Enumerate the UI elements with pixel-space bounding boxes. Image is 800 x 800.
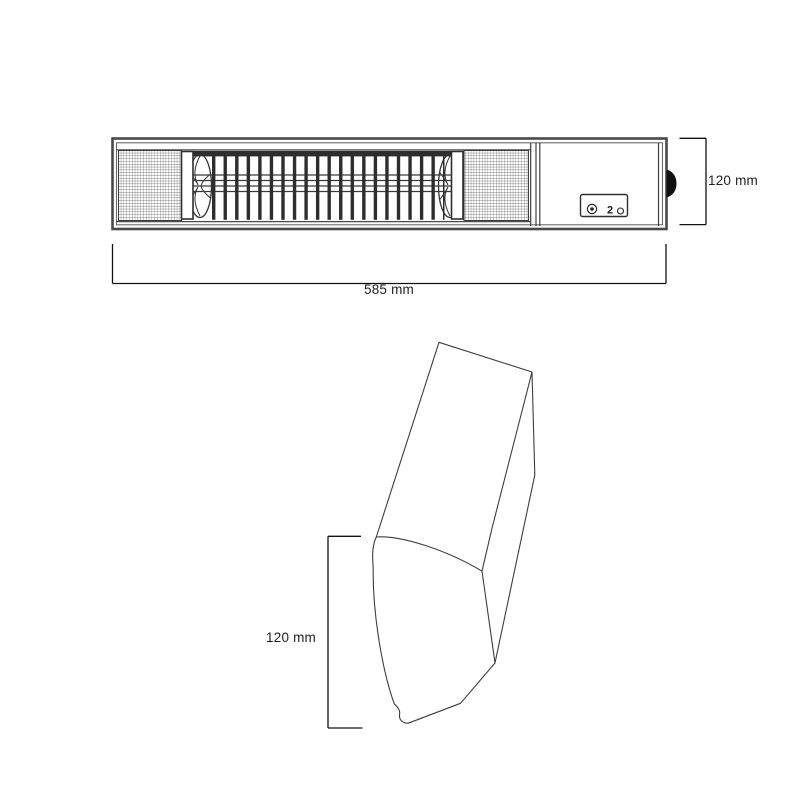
lamp-bracket-right (452, 152, 464, 220)
front-view: 2 (113, 138, 707, 283)
side-height-dimension-label: 120 mm (240, 631, 316, 645)
side-knob-icon (667, 170, 677, 198)
heater-dimension-drawing: 2 (0, 0, 800, 800)
technical-drawing-page: 2 585 mm 120 mm 120 mm (0, 0, 800, 800)
width-dimension-lines (113, 244, 667, 284)
grill-top-band (193, 151, 452, 157)
lamp-bracket-left (182, 152, 194, 220)
front-width-dimension-label: 585 mm (339, 283, 439, 297)
grill-bars (212, 156, 445, 220)
mesh-panel-right (464, 151, 529, 221)
side-height-dimension-lines (328, 536, 363, 728)
side-view (328, 342, 535, 728)
svg-text:2: 2 (607, 205, 613, 217)
front-height-dimension-lines (680, 138, 707, 224)
front-height-dimension-label: 120 mm (708, 174, 758, 188)
side-view-outline (373, 342, 535, 723)
mesh-panel-left (119, 151, 182, 221)
